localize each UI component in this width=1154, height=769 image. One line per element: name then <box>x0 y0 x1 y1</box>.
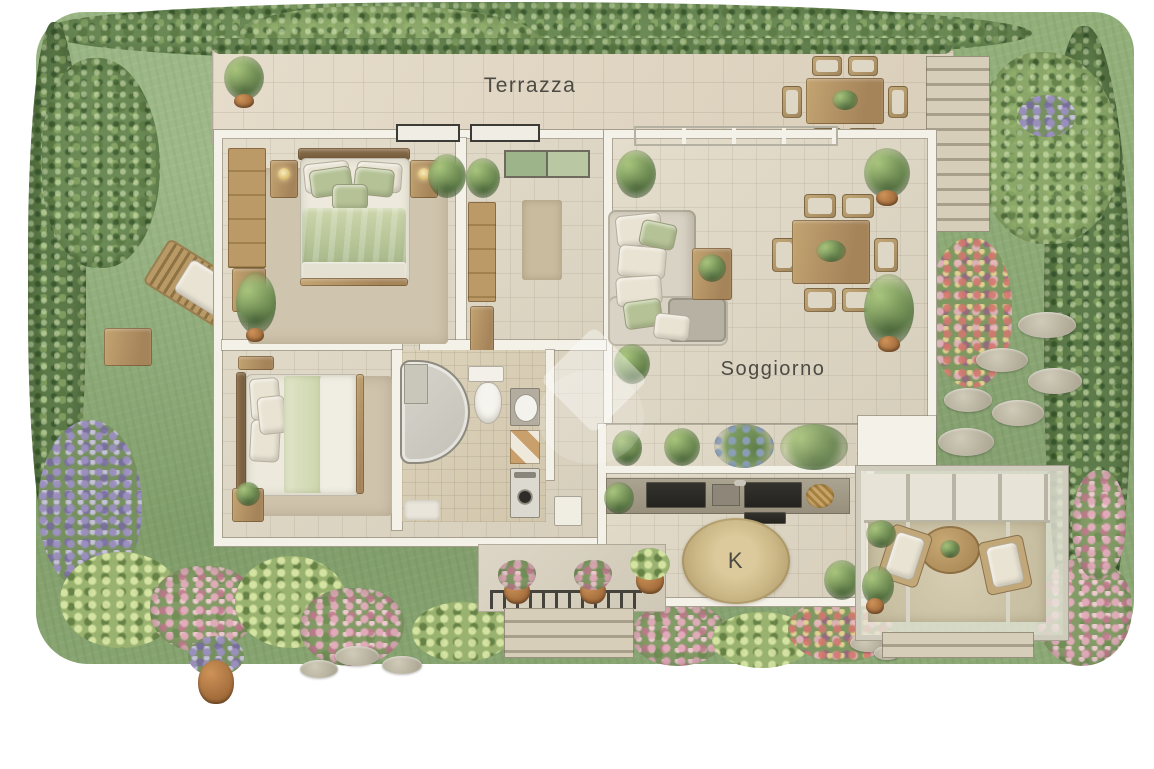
bed1-footboard <box>300 278 408 286</box>
shower-shelf <box>404 364 428 404</box>
stepping-stone <box>992 400 1044 426</box>
faucet <box>734 480 746 486</box>
stepping-stone <box>300 660 338 678</box>
washer-controls <box>514 472 536 478</box>
stepping-stone <box>1028 368 1082 394</box>
bed2-blanket-white <box>320 376 358 493</box>
dining-chair <box>874 238 898 272</box>
bed2-headboard <box>236 372 246 496</box>
bed1-blanket <box>302 208 406 268</box>
entrance-steps <box>504 608 634 658</box>
conservatory-table-plant <box>940 540 960 558</box>
wall-living-southeast <box>858 416 936 468</box>
nightstand-plant <box>236 482 260 506</box>
window-bedroom1 <box>396 124 460 142</box>
terrace-chair <box>782 86 802 118</box>
dining-chair <box>804 288 836 312</box>
conservatory-steps <box>882 632 1034 658</box>
bed1-foot-throw <box>302 262 406 278</box>
conservatory-plant-n <box>866 520 896 548</box>
flowers-top-right-purple <box>1018 95 1076 137</box>
bed1-pillow-center <box>332 184 368 210</box>
terrace-chair <box>812 56 842 76</box>
toilet-tank <box>468 366 504 382</box>
sofa-cushion <box>617 244 668 280</box>
counter-module <box>712 484 740 506</box>
wardrobe <box>228 148 266 268</box>
counter-basket <box>806 484 834 508</box>
dining-chair <box>842 194 874 218</box>
bedroom1-plant-ne <box>428 154 466 198</box>
hall-console <box>468 202 496 302</box>
hall-plant <box>466 158 500 198</box>
hall-artwork <box>504 150 590 178</box>
kitchen-label: K <box>682 548 790 574</box>
kitchen-plant-se <box>824 560 860 600</box>
stepping-stone <box>335 646 379 666</box>
stepping-stone <box>976 348 1028 372</box>
plant-pot <box>246 328 264 342</box>
hall-runner-rug <box>522 200 562 280</box>
bedside-lamp <box>278 168 290 180</box>
dining-centerpiece <box>816 240 846 262</box>
porch-pot-flowers <box>630 548 670 580</box>
plant-pot <box>876 190 898 206</box>
living-room-label: Soggiorno <box>688 358 858 381</box>
stepping-stone <box>1018 312 1076 338</box>
kitchen-plant-west <box>604 482 634 514</box>
stepping-stone <box>938 428 994 456</box>
conservatory-roof <box>864 474 1050 523</box>
bedroom1-plant-sw <box>236 272 276 334</box>
washer-door <box>516 488 534 506</box>
ledge-plant <box>664 428 700 466</box>
ledge-plant-eucalyptus <box>780 424 848 470</box>
coffee-table-plant <box>698 254 726 282</box>
towel-shelf <box>510 430 540 464</box>
garden-side-table <box>104 328 152 366</box>
sofa-cushion <box>653 312 692 342</box>
sliding-glass-door-living <box>634 126 838 146</box>
bath-mat <box>404 500 440 520</box>
terrace-plant-pot <box>234 94 254 108</box>
cooktop <box>646 482 706 508</box>
bed2-shelf <box>238 356 274 370</box>
ledge-plant-flowering <box>714 424 774 468</box>
corridor-cabinet <box>554 496 582 526</box>
bed2-footboard <box>356 374 364 494</box>
terracotta-urn <box>198 660 234 704</box>
terrace-label: Terrazza <box>420 74 640 98</box>
terrace-chair <box>888 86 908 118</box>
floor-plan-illustration: Terrazza <box>0 0 1154 769</box>
toilet-bowl <box>474 382 502 424</box>
plant-pot <box>866 598 884 614</box>
living-plant-nw <box>616 150 656 198</box>
stepping-stone <box>382 656 422 674</box>
dining-chair <box>804 194 836 218</box>
terrace-vine-strip <box>212 38 952 54</box>
bed2-blanket-green <box>284 376 322 493</box>
plant-pot <box>878 336 900 352</box>
window-hall <box>470 124 540 142</box>
stepping-stone <box>944 388 992 412</box>
terrace-table-centerpiece <box>832 90 858 110</box>
terrace-chair <box>848 56 878 76</box>
sink-basin <box>514 394 538 422</box>
kitchen-sink <box>744 482 802 508</box>
